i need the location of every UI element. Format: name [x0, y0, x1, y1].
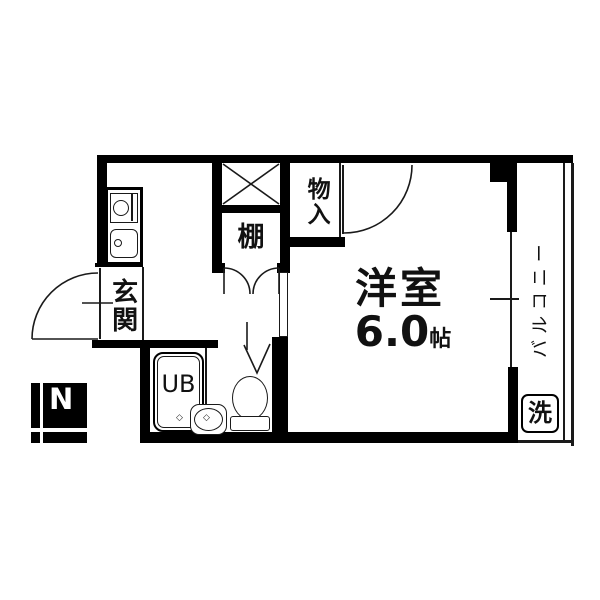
entrance-door-arc [32, 273, 98, 339]
plan-line-layer [0, 0, 600, 600]
wash-label: 洗 [521, 394, 559, 433]
shelf-label: 棚 [222, 213, 280, 263]
room-size-unit: 帖 [429, 328, 451, 351]
closet-door-right-arc [253, 268, 279, 294]
unit-bath-label: UB [153, 372, 204, 398]
room-name-label: 洋室 [344, 266, 456, 312]
storage-label: 物入 [299, 172, 333, 232]
entrance-label: 玄関 [103, 272, 141, 340]
toilet-door-fold [244, 344, 270, 373]
room-size-value: 6.0 [355, 310, 429, 354]
room-size-label: 6.0帖 [348, 310, 458, 352]
closet-door-left-arc [224, 268, 250, 294]
floor-plan: ◇ ◇ N 洋室 6.0帖 玄関 物入 棚 UB 洗 バルコニー [0, 0, 600, 600]
balcony-label: バルコニー [531, 223, 551, 373]
room-door-arc [344, 165, 412, 233]
